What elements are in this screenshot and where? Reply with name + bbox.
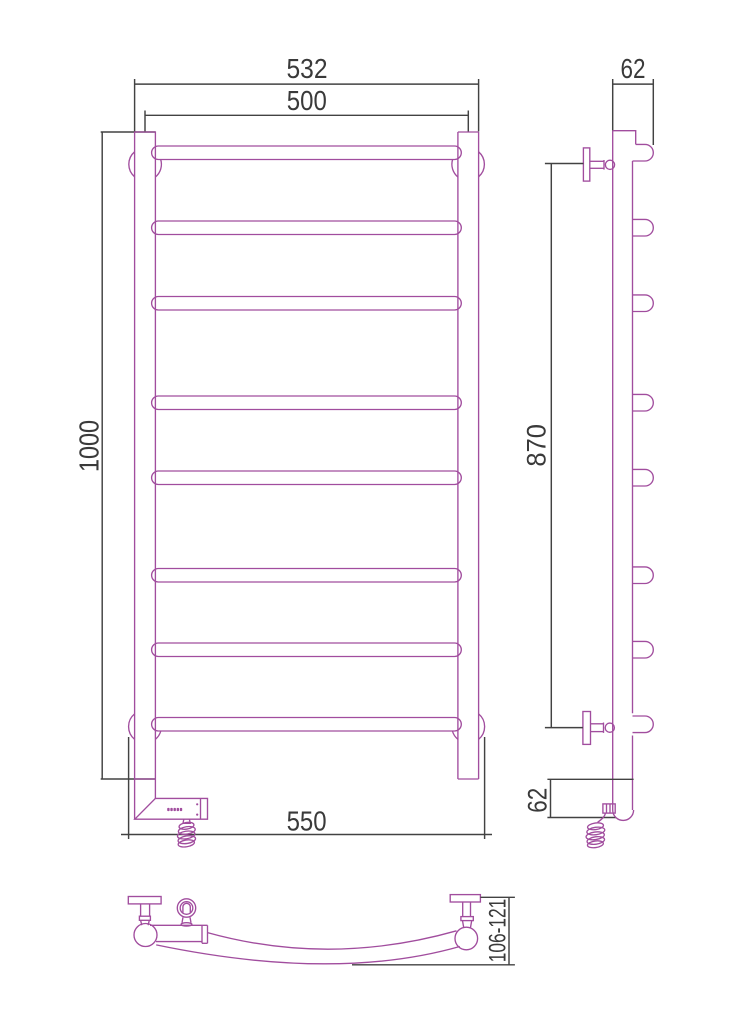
svg-text:1000: 1000 — [73, 420, 104, 472]
svg-text:62: 62 — [523, 788, 553, 813]
svg-text:532: 532 — [287, 53, 328, 84]
svg-text:62: 62 — [621, 53, 646, 84]
svg-text:106-121: 106-121 — [485, 899, 512, 963]
svg-text:870: 870 — [521, 424, 551, 467]
svg-text:500: 500 — [287, 85, 327, 116]
svg-text:550: 550 — [287, 806, 327, 837]
